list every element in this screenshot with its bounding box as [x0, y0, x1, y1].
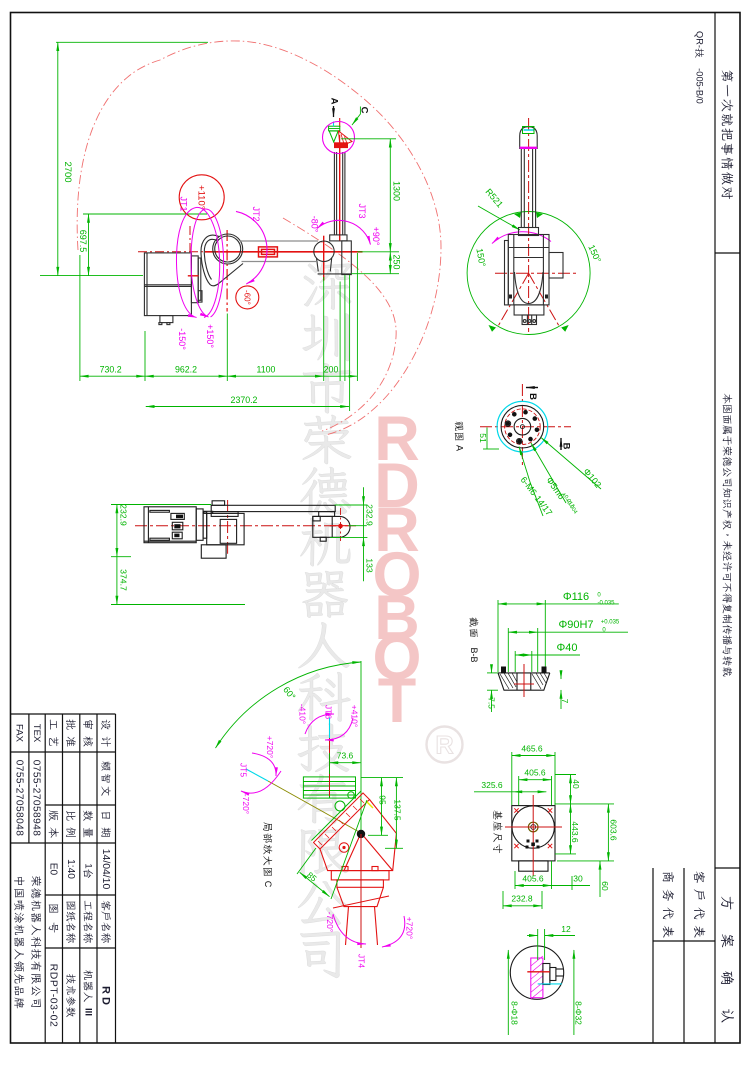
svg-text:133: 133 [365, 558, 375, 573]
svg-text:374.7: 374.7 [119, 569, 129, 591]
svg-text:0755-27058948: 0755-27058948 [31, 760, 42, 837]
svg-text:+720°: +720° [405, 917, 415, 940]
svg-text:R: R [435, 732, 453, 760]
svg-text:T: T [378, 666, 416, 736]
svg-text:-0.035: -0.035 [597, 601, 615, 607]
svg-text:1:40: 1:40 [65, 859, 76, 879]
svg-text:40: 40 [571, 779, 581, 789]
svg-text:-410°: -410° [298, 704, 308, 724]
svg-text:Φ90H7: Φ90H7 [558, 619, 593, 631]
svg-text:TEX: TEX [31, 724, 42, 743]
svg-text:73.6: 73.6 [337, 751, 354, 761]
svg-text:250: 250 [392, 254, 402, 269]
svg-text:405.6: 405.6 [522, 874, 544, 884]
svg-text:A: A [328, 98, 339, 105]
svg-text:E0: E0 [48, 863, 59, 876]
svg-text:8-Φ32: 8-Φ32 [574, 1001, 584, 1025]
svg-text:+110°: +110° [196, 185, 207, 210]
svg-text:C: C [263, 881, 273, 888]
svg-text:Φ40: Φ40 [556, 642, 577, 654]
svg-text:+150°: +150° [205, 324, 215, 348]
svg-text:1100: 1100 [257, 365, 276, 375]
svg-text:+720°: +720° [265, 736, 275, 759]
svg-text:7: 7 [560, 699, 570, 704]
svg-text:2370.2: 2370.2 [231, 395, 258, 405]
svg-text:232.9: 232.9 [119, 504, 129, 526]
svg-text:1300: 1300 [392, 181, 402, 201]
svg-text:0755-27058048: 0755-27058048 [13, 760, 24, 837]
svg-text:60: 60 [600, 881, 610, 891]
svg-text:14/04/10: 14/04/10 [100, 849, 111, 890]
svg-text:-005-B/0: -005-B/0 [695, 68, 705, 104]
svg-text:-80°: -80° [310, 216, 320, 233]
svg-text:200: 200 [324, 365, 339, 375]
svg-text:B: B [527, 393, 538, 400]
svg-text:405.6: 405.6 [524, 768, 546, 778]
svg-text:730.2: 730.2 [100, 365, 122, 375]
svg-text:962.2: 962.2 [175, 365, 197, 375]
svg-text:603.6: 603.6 [609, 819, 619, 841]
svg-text:JT3: JT3 [357, 203, 367, 218]
svg-text:JT1: JT1 [179, 196, 189, 211]
svg-text:51: 51 [478, 433, 488, 443]
svg-text:JT4: JT4 [357, 954, 367, 968]
svg-text:95: 95 [378, 795, 388, 805]
svg-text:B: B [560, 443, 571, 450]
svg-text:RDPT-03-02: RDPT-03-02 [48, 964, 59, 1028]
svg-text:+0.035: +0.035 [601, 620, 620, 626]
svg-text:465.6: 465.6 [521, 744, 543, 754]
svg-text:A: A [455, 445, 465, 451]
svg-text:30: 30 [573, 874, 583, 884]
svg-text:-720°: -720° [241, 794, 251, 814]
svg-text:232.9: 232.9 [365, 504, 375, 526]
svg-text:+90°: +90° [371, 227, 381, 246]
svg-text:R D: R D [100, 986, 112, 1005]
svg-text:JT5: JT5 [239, 763, 249, 777]
svg-text:-150°: -150° [177, 328, 187, 350]
svg-text:8-Φ18: 8-Φ18 [510, 1001, 520, 1025]
svg-text:III: III [82, 1008, 93, 1016]
svg-text:FAX: FAX [14, 724, 25, 743]
svg-text:B-B: B-B [469, 647, 479, 662]
svg-text:325.6: 325.6 [481, 780, 503, 790]
svg-text:12: 12 [561, 924, 571, 934]
svg-text:-60°: -60° [243, 290, 252, 305]
svg-text:1: 1 [82, 863, 93, 868]
svg-text:137.5: 137.5 [393, 799, 403, 821]
svg-text:JT2: JT2 [251, 206, 261, 221]
svg-text:7.5: 7.5 [487, 697, 497, 709]
svg-text:697.5: 697.5 [78, 230, 88, 253]
svg-text:443.6: 443.6 [570, 821, 580, 843]
svg-text:Φ116: Φ116 [563, 591, 589, 603]
svg-text:2700: 2700 [62, 161, 73, 182]
svg-text:232.8: 232.8 [511, 894, 533, 904]
svg-text:QR-: QR- [695, 31, 705, 48]
svg-text:JT6: JT6 [324, 705, 334, 719]
